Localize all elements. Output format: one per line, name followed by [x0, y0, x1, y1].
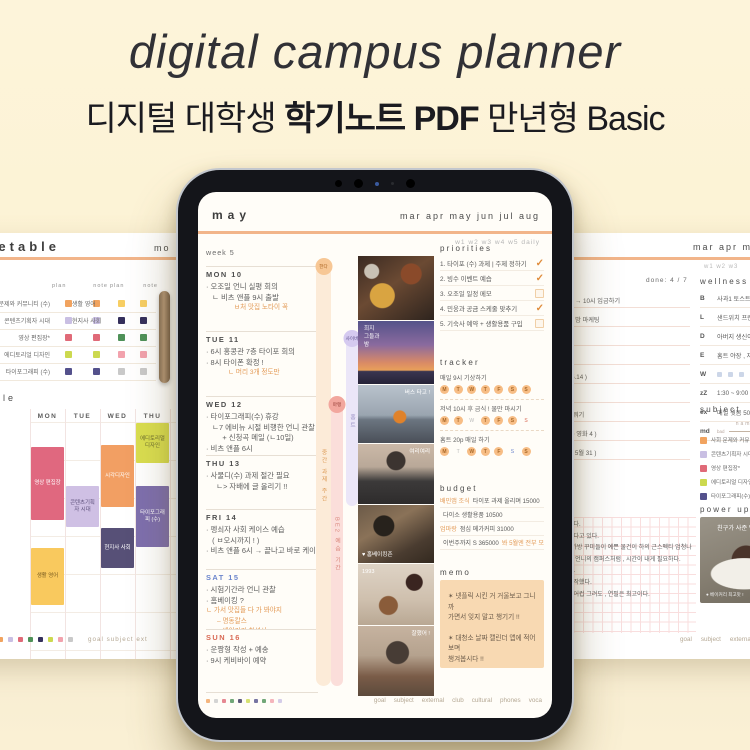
habit-day[interactable]: M: [440, 385, 449, 394]
color-dot: [270, 699, 274, 703]
color-dot: [262, 699, 266, 703]
todo-item: [562, 384, 690, 403]
journal-line: 뻔다.: [568, 520, 692, 532]
footer-tab[interactable]: goal: [680, 636, 692, 643]
meal-value: 아버지 생신이라 분식 뽀개기: [717, 332, 750, 341]
color-dot: [38, 637, 43, 642]
class-block: 타이포그래피 (수): [136, 486, 169, 547]
note-line: · 타이포그래피(수) 휴강: [206, 412, 318, 423]
sleep-key: zZ: [700, 390, 713, 397]
journal-line: 다.: [568, 566, 692, 578]
plan-swatch: [118, 300, 125, 307]
note-header: note: [143, 283, 158, 289]
ipad: may mar apr may jun jul aug w1 w2 w3 w4 …: [176, 168, 574, 742]
priority-item: 5. 기숙사 예약 + 생활용품 구입: [440, 316, 544, 331]
class-block: 콘텐츠기획자 시대: [66, 486, 99, 527]
legend-row: [72, 329, 156, 347]
note-line: · 비츠 앤플 6시 → 끝나고 바로 케이스…: [206, 546, 318, 557]
checkbox[interactable]: [535, 319, 544, 328]
photo-caption: 1993: [362, 568, 374, 576]
day-label: SUN 16: [206, 633, 318, 642]
color-dot: [222, 699, 226, 703]
subtitle-prefix: 디지털 대학생: [85, 100, 284, 138]
legend-label: 타이포그래피 (수): [0, 367, 54, 376]
habit-day[interactable]: F: [494, 447, 503, 456]
subject-label: 사회 문제와 커뮤니티(수): [711, 436, 750, 444]
camera-led-icon: [375, 182, 379, 186]
photo-caption: 잘했어 !: [411, 630, 430, 638]
color-dot: [18, 637, 23, 642]
day-label: MON 10: [206, 270, 318, 279]
day-label: FRI 14: [206, 513, 318, 522]
footer-tab[interactable]: cultural: [472, 697, 492, 704]
habit-day[interactable]: F: [494, 416, 503, 425]
subject-title: subject: [700, 405, 741, 414]
footer-tab[interactable]: external: [730, 636, 750, 643]
footer-tabs[interactable]: goal subject external club cultural phon…: [374, 697, 542, 704]
sleep-value: 1:30 ~ 9:00 ( 7h 30 ): [717, 390, 750, 397]
color-dot: [48, 637, 53, 642]
color-dot: [8, 637, 13, 642]
meal-value: 샌드위치 프렌치 토스트: [717, 313, 750, 322]
day-label: THU 13: [206, 459, 318, 468]
priorities-title: priorities: [440, 244, 544, 253]
color-dot: [230, 699, 234, 703]
budget-text: 이번주까지 S 365000: [443, 538, 499, 547]
day-header: TUE: [65, 413, 100, 420]
water-tracker[interactable]: W: [700, 365, 750, 384]
selfie-photo: 잘했어 !: [358, 626, 434, 696]
class-block: 현지사 사회: [101, 528, 134, 568]
pen: [159, 291, 170, 383]
checkbox[interactable]: [535, 289, 544, 298]
power-up-title: power up: [700, 505, 750, 514]
day-label: TUE 11: [206, 335, 318, 344]
plan-swatch: [118, 351, 125, 358]
color-dot: [278, 699, 282, 703]
month-tabs[interactable]: mar apr may ju: [693, 242, 750, 252]
note-line: · 운짱형 작성 + 예송: [206, 645, 318, 656]
plan-swatch: [65, 300, 72, 307]
habit-day[interactable]: S: [508, 385, 517, 394]
habit-tracker: 매일 9시 기상하기 M T W T F S S 저녁 10시 후 금식 ! 물…: [440, 369, 544, 461]
checkbox[interactable]: [536, 273, 544, 284]
habit-label: 저녁 10시 후 금식 ! 물만 마시기: [440, 404, 544, 413]
footer-tabs[interactable]: goal subject external club cultural: [680, 636, 750, 643]
footer-color-dots: [0, 637, 73, 642]
todo-item: ( ~ 5.14 ): [562, 365, 690, 384]
project-badge: 한다: [315, 258, 332, 275]
note-line: · 홈베이킹 ?: [206, 596, 318, 607]
day-row-sun: SUN 16 · 운짱형 작성 + 예송 · 9시 케비바이 예약: [206, 629, 318, 693]
budget-text: 다이소 생활용품 10500: [443, 510, 503, 519]
budget-row: 이번주까지 S 365000봐 5월엔 전부 모을거야: [440, 536, 544, 550]
note-line: · 펭쇠자 사회 케이스 예습: [206, 525, 318, 536]
photo-caption: 희지 그들과 밤: [364, 325, 379, 349]
legend-label: 에디토리얼 디자인: [0, 350, 54, 359]
subject-swatch: [700, 437, 707, 444]
day-header: THU: [135, 413, 170, 420]
habit-day[interactable]: T: [481, 447, 490, 456]
memo-note: ✶ 넷플릭 시킨 거 거울보고 그니까 가면서 잊지 말고 챙기기 !!: [448, 592, 536, 624]
hero: digital campus planner 디지털 대학생 학기노트 PDF …: [0, 24, 750, 140]
note-accent: – 명동칼스: [206, 617, 318, 628]
day-row-mon: MON 10 · 오조일 언니 실평 회의 ㄴ 비츠 앤플 9시 출발 ㅂ처 맛…: [206, 266, 318, 331]
todo-item: 2 ( ~ 영화 4 ): [562, 422, 690, 441]
todo-item: 플랜 밤 마케팅: [562, 308, 690, 327]
habit-day[interactable]: M: [440, 447, 449, 456]
color-dot: [214, 699, 218, 703]
todo-item: ( ( ~ 5월 31 ): [562, 441, 690, 460]
month-title: may: [212, 208, 251, 222]
priority-item: 2. 빙수 이벤트 예습: [440, 271, 544, 286]
class-block: 생활 영어: [31, 548, 64, 605]
checkbox[interactable]: [536, 303, 544, 314]
memo-title: memo: [440, 568, 544, 577]
photo-strip: 희지 그들과 밤 버스 타고 ! 여리여리 ♥ 홈베이킹존 1993 잘했어 !: [358, 256, 434, 696]
habit-row: 매일 9시 기상하기 M T W T F S S: [440, 369, 544, 400]
priority-item: 3. 오조일 일정 메모: [440, 286, 544, 301]
legend-label: 현지사 사회: [72, 316, 110, 325]
color-dot: [58, 637, 63, 642]
note-accent: ㅂ처 맛집 노타이 꼭: [206, 303, 318, 314]
footer-tab[interactable]: phones: [500, 697, 521, 704]
front-camera-array: [335, 179, 415, 188]
day-header: MON: [30, 413, 65, 420]
habit-day[interactable]: W: [467, 447, 476, 456]
class-block: 시각디자인: [101, 445, 134, 507]
sensor-icon: [391, 182, 394, 185]
habit-row: 홈트 20p 매일 하기 M T W T F S S: [440, 431, 544, 461]
class-block: 에디토리얼 디자인: [136, 423, 169, 463]
subject-swatch: [700, 493, 707, 500]
meal-value: 사과1 토스트: [717, 294, 750, 303]
subtitle-suffix: 만년형 Basic: [479, 100, 665, 138]
legend-label: 콘텐츠기획자 시대: [0, 316, 54, 325]
journal-line: 하다고 있다.: [568, 532, 692, 544]
day-row-tue: TUE 11 · 6시 홍콩관 7층 타이포 회의 · 8시 타이폰 확정 ! …: [206, 331, 318, 396]
camera-icon: [354, 179, 363, 188]
note-accent: ㄴ 가서 맛집들 다 가 봐야지: [206, 606, 318, 617]
project-pill-label: BE2 예습 기간: [333, 517, 342, 572]
habit-day[interactable]: W: [467, 385, 476, 394]
budget-tag: 엄마랑: [440, 524, 457, 533]
note-line: · 비츠 앤플 6시: [206, 444, 318, 455]
habit-day[interactable]: T: [481, 385, 490, 394]
cake-photo-tag: ● 베이커리 최고맛 !: [706, 592, 743, 598]
cake-photo-caption: 친구가 사준 명장 케이크: [700, 523, 750, 532]
plan-swatch: [118, 317, 125, 324]
priorities-list: 1. 타이포 (수) 과제 | 주제 정하기 2. 빙수 이벤트 예습 3. 오…: [440, 256, 544, 331]
photo-caption: 여리여리: [409, 448, 430, 456]
habit-day[interactable]: T: [454, 385, 463, 394]
note-line: · 9시 케비바이 예약: [206, 656, 318, 667]
project-pill[interactable]: 사이버 홈트: [346, 338, 358, 506]
subtitle-bold: 학기노트 PDF: [284, 100, 479, 138]
page-title: digital campus planner: [0, 24, 750, 79]
note-swatch: [140, 300, 147, 307]
budget-row: 다이소 생활용품 10500: [440, 508, 544, 522]
footer-tab[interactable]: subject: [701, 636, 721, 643]
memo-note: ✶ 대청소 날짜 캘린더 앱에 적어보며 챙겨봅시다 !!: [448, 634, 536, 666]
plan-swatch: [65, 368, 72, 375]
subject-legend: 사회 문제와 커뮤니티(수)생활 영어 콘텐츠기획자 시대현지사 사회 영상 편…: [700, 433, 750, 503]
plan-swatch: [65, 351, 72, 358]
day-row-wed: WED 12 · 타이포그래피(수) 휴강 ㄴ7 에비뉴 시절 비행한 언니 관…: [206, 396, 318, 455]
todo-list: 원어 → 10시 입금하기 플랜 밤 마케팅 메모 ( ~ 5.14 ) 3시 …: [562, 289, 690, 460]
subject-label: 영상 편집장*: [711, 464, 750, 472]
day-label: WED 12: [206, 400, 318, 409]
footer-tab[interactable]: subject: [394, 697, 414, 704]
legend-headers: plan note: [110, 283, 158, 289]
habit-day[interactable]: F: [494, 385, 503, 394]
note-line: + 신청곡 메일 (ㄴ10일): [206, 433, 318, 444]
day-row-sat: SAT 15 · 시험기간라 언니 관찰 · 홈베이킹 ? ㄴ 가서 맛집들 다…: [206, 569, 318, 629]
legend-row: [72, 363, 156, 381]
meal-key: D: [700, 333, 713, 340]
todo-item: [562, 346, 690, 365]
dinner-table-photo: [358, 256, 434, 320]
budget-note: 봐 5월엔 전부 모을거야: [502, 538, 544, 547]
day-row-thu: THU 13 · 사물디(수) 과제 절간 필요 ㄴ> 자배에 글 올리기 !!: [206, 455, 318, 509]
todo-item: 3시 뭐기: [562, 403, 690, 422]
color-dot: [0, 637, 3, 642]
note-line: ㄴ7 에비뉴 시절 비행한 언니 관찰: [206, 423, 318, 434]
priority-text: 5. 기숙사 예약 + 생활용품 구입: [440, 319, 523, 328]
subject-label: 에디토리얼 디자인: [711, 478, 750, 486]
habit-day[interactable]: M: [440, 416, 449, 425]
project-pill-label: 중간 과제 주간: [319, 449, 328, 503]
meal-key: L: [700, 314, 713, 321]
todo-item: 원어 → 10시 입금하기: [562, 289, 690, 308]
plan-swatch: [65, 317, 72, 324]
budget-row: 배민앱 조식타이포 과제 올리며 15000: [440, 494, 544, 508]
note-swatch: [140, 317, 147, 324]
footer-tab[interactable]: voca: [529, 697, 542, 704]
legend-headers: plan note: [52, 283, 108, 289]
meal-value: 홈트 야장 , 자료 , 메일: [717, 351, 750, 360]
accent-line: [562, 257, 750, 260]
day-row-fri: FRI 14 · 펭쇠자 사회 케이스 예습 ( ㅂ오시까지 ! ) · 비츠 …: [206, 509, 318, 569]
habit-day[interactable]: S: [522, 416, 531, 425]
color-dot: [246, 699, 250, 703]
journal-line: 시작했다.: [568, 578, 692, 590]
subject-name-header: name: [700, 421, 750, 427]
habit-day[interactable]: T: [454, 447, 463, 456]
legend-label: 영상 편집장*: [0, 333, 54, 342]
meal-key: E: [700, 352, 713, 359]
cafe-photo: ♥ 홈베이킹존: [358, 505, 434, 563]
class-block: 영상 편집장: [31, 447, 64, 520]
note-line: · 사물디(수) 과제 절간 필요: [206, 471, 318, 482]
footer-color-dots: [206, 699, 282, 703]
dessert-photo: 1993: [358, 564, 434, 626]
day-label: SAT 15: [206, 573, 318, 582]
water-cell[interactable]: [728, 372, 733, 377]
water-cell[interactable]: [739, 372, 744, 377]
priority-text: 3. 오조일 일정 메모: [440, 289, 492, 298]
journal-grid-paper: 뻔다. 하다고 있다. : 가방 꾸미들이 예쁜 물건이 하의 근스펙티 엄청나…: [564, 517, 696, 633]
note-line: ( ㅂ오시까지 ! ): [206, 536, 318, 547]
habit-day[interactable]: S: [522, 447, 531, 456]
wellness-log: B사과1 토스트 L샌드위치 프렌치 토스트 D아버지 생신이라 분식 뽀개기 …: [700, 289, 750, 441]
project-pill[interactable]: 마랭 BE2 예습 기간: [331, 404, 343, 686]
subject-label: 타이포그래피(수): [711, 492, 750, 500]
photo-caption: 버스 타고 !: [405, 389, 430, 397]
priority-text: 1. 타이포 (수) 과제 | 주제 정하기: [440, 259, 527, 268]
todo-item: 메모: [562, 327, 690, 346]
habit-row: 저녁 10시 후 금식 ! 물만 마시기 M T W T F S S: [440, 400, 544, 431]
tracker-title: tracker: [440, 358, 544, 367]
journal-line: 그 언니의 캠퍼스처럼 , 시간이 내게 필요하다.: [568, 555, 692, 567]
legend-label: 생활 영어: [72, 299, 110, 308]
habit-day[interactable]: T: [481, 416, 490, 425]
subject-swatch: [700, 465, 707, 472]
legend-label: 사회 문제와 커뮤니티 (수): [0, 299, 54, 308]
water-key: W: [700, 371, 713, 378]
habit-day[interactable]: S: [522, 385, 531, 394]
water-cell[interactable]: [717, 372, 722, 377]
note-swatch: [140, 351, 147, 358]
budget-row: 엄마랑점심 메가커피 31000: [440, 522, 544, 536]
week-label: week 5: [206, 248, 235, 257]
subject-swatch: [700, 451, 707, 458]
note-swatch: [140, 334, 147, 341]
priority-text: 2. 빙수 이벤트 예습: [440, 274, 492, 283]
note-line: ㄴ> 자배에 글 올리기 !!: [206, 482, 318, 493]
photo-caption: ♥ 홈베이킹존: [362, 551, 393, 559]
planner-screen: may mar apr may jun jul aug w1 w2 w3 w4 …: [198, 192, 552, 718]
schedule-title: schedule: [0, 393, 16, 403]
footer-tab[interactable]: goal: [374, 697, 386, 704]
project-badge: 마랭: [329, 396, 346, 413]
color-dot: [28, 637, 33, 642]
plan-header: plan: [52, 283, 66, 289]
habit-label: 홈트 20p 매일 하기: [440, 435, 544, 444]
week-tabs[interactable]: w1 w2 w3: [704, 264, 738, 270]
legend-row: [72, 346, 156, 364]
page-subtitle: 디지털 대학생 학기노트 PDF 만년형 Basic: [0, 91, 750, 140]
journal-line: 물어컵 그려도 , 연필은 최고이다.: [568, 590, 692, 602]
weekly-page-right: mar apr may ju w1 w2 w3 done: 4 / 7 well…: [562, 233, 750, 659]
cake-photo: 친구가 사준 명장 케이크 ● 베이커리 최고맛 !: [700, 517, 750, 603]
wellness-title: wellness: [700, 277, 748, 286]
subject-swatch: [700, 479, 707, 486]
note-line: · 6시 홍콩관 7층 타이포 회의: [206, 347, 318, 358]
plan-swatch: [118, 334, 125, 341]
month-tabs[interactable]: mar apr may jun jul aug: [400, 211, 540, 221]
plan-swatch: [118, 368, 125, 375]
rooftop-photo: 버스 타고 !: [358, 385, 434, 443]
note-header: note: [93, 283, 108, 289]
project-pill[interactable]: 한다 중간 과제 주간: [316, 266, 331, 686]
note-line: · 오조일 언니 실평 회의: [206, 282, 318, 293]
color-dot: [68, 637, 73, 642]
priority-item: 1. 타이포 (수) 과제 | 주제 정하기: [440, 256, 544, 271]
habit-day[interactable]: T: [454, 416, 463, 425]
legend-row: 생활 영어: [72, 295, 156, 313]
priority-item: 4. 민웅과 공금 스케줄 맞추기: [440, 301, 544, 316]
memo-box: ✶ 넷플릭 시킨 거 거울보고 그니까 가면서 잊지 말고 챙기기 !! ✶ 대…: [440, 580, 544, 668]
camera-icon: [335, 180, 342, 187]
portrait-photo: 여리여리: [358, 444, 434, 504]
habit-day[interactable]: W: [467, 416, 476, 425]
subject-label: 콘텐츠기획자 시대: [711, 450, 750, 458]
priority-text: 4. 민웅과 공금 스케줄 맞추기: [440, 304, 517, 313]
timetable-month-tab[interactable]: mo: [154, 243, 171, 253]
journal-line: : 가방 꾸미들이 예쁜 물건이 하의 근스펙티 엄청나다!: [568, 543, 692, 555]
color-dot: [206, 699, 210, 703]
budget-tag: 배민앱 조식: [440, 496, 470, 505]
note-line: · 8시 타이폰 확정 !: [206, 358, 318, 369]
habit-label: 매일 9시 기상하기: [440, 373, 544, 382]
meal-key: B: [700, 295, 713, 302]
budget-text: 점심 메가커피 31000: [460, 524, 514, 533]
footer-tab[interactable]: club: [452, 697, 464, 704]
budget-title: budget: [440, 484, 544, 493]
budget-text: 타이포 과제 올리며 15000: [473, 496, 540, 505]
note-line: ㄴ 비츠 앤플 9시 출발: [206, 293, 318, 304]
habit-day[interactable]: S: [508, 416, 517, 425]
note-swatch: [140, 368, 147, 375]
poster: digital campus planner 디지털 대학생 학기노트 PDF …: [0, 0, 750, 750]
plan-swatch: [65, 334, 72, 341]
note-accent: ㄴ 머리 3개 정도만: [206, 368, 318, 379]
checkbox[interactable]: [536, 258, 544, 269]
mood-slider[interactable]: [729, 431, 750, 432]
accent-line: [198, 231, 552, 234]
camera-icon: [406, 179, 415, 188]
budget-list: 배민앱 조식타이포 과제 올리며 15000 다이소 생활용품 10500 엄마…: [440, 494, 544, 550]
legend-row: 현지사 사회: [72, 312, 156, 330]
plan-header: plan: [110, 283, 124, 289]
timetable-title: timetable: [0, 239, 60, 254]
color-dot: [254, 699, 258, 703]
footer-tab[interactable]: external: [422, 697, 444, 704]
day-header: WED: [100, 413, 135, 420]
habit-day[interactable]: S: [508, 447, 517, 456]
color-dot: [238, 699, 242, 703]
project-pill-label: 홈트: [348, 414, 357, 430]
sunset-photo: 희지 그들과 밤: [358, 321, 434, 385]
done-counter: done: 4 / 7: [646, 277, 688, 284]
note-line: · 시험기간라 언니 관찰: [206, 585, 318, 596]
